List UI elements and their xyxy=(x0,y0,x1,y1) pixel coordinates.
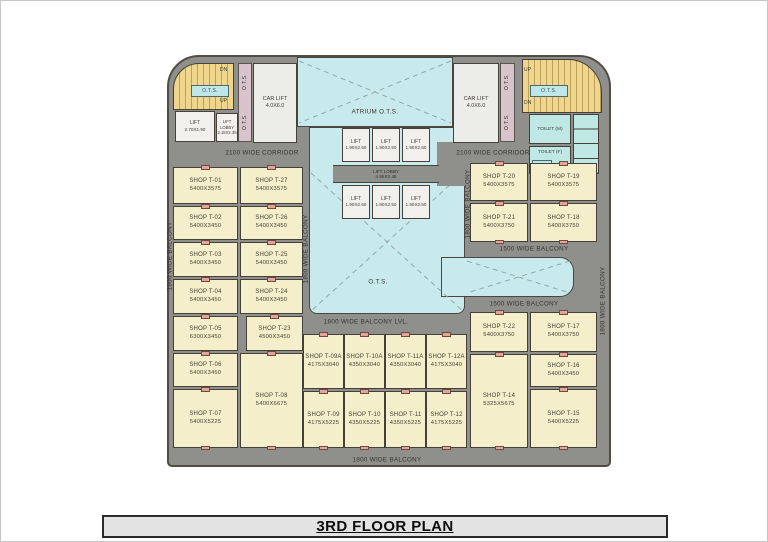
shop-t05: SHOP T-05 6300X3450 xyxy=(173,316,238,351)
balcony-left-label: 1800 WIDE BALCONY xyxy=(167,222,174,291)
shop-size: 5325X5675 xyxy=(483,401,514,409)
balcony-right-label: 1800 WIDE BALCONY xyxy=(600,267,607,336)
shop-t01: SHOP T-01 5400X3575 xyxy=(173,167,238,204)
shop-size: 5400X3450 xyxy=(190,223,221,231)
shop-t12a: SHOP T-12A 4175X3040 xyxy=(426,334,467,389)
shop-t03: SHOP T-03 5400X3450 xyxy=(173,242,238,277)
car-lift-left: CAR LIFT 4.0X6.0 xyxy=(253,63,297,143)
shop-t12: SHOP T-12 4175X5225 xyxy=(426,391,467,448)
shop-size: 4175X5225 xyxy=(431,420,462,428)
shop-size: 5400X3450 xyxy=(256,260,287,268)
shop-t21: SHOP T-21 5400X3750 xyxy=(470,203,528,242)
shop-label: SHOP T-05 xyxy=(189,326,221,334)
shop-t09: SHOP T-09 4175X5225 xyxy=(303,391,344,448)
toilet-men-label: TOILET (M) xyxy=(537,127,562,132)
shop-t06: SHOP T-06 5400X3450 xyxy=(173,353,238,387)
shop-label: SHOP T-12A xyxy=(428,354,464,362)
shop-t27: SHOP T-27 5400X3575 xyxy=(240,167,303,204)
atrium-ots-area xyxy=(297,57,453,127)
balcony-inner-right-label: 1800 WIDE BALCONY xyxy=(465,170,472,239)
shop-size: 5400X3750 xyxy=(483,332,514,340)
shop-t11: SHOP T-11 4350X5225 xyxy=(385,391,426,448)
lift-size: 1.90X2.50 xyxy=(406,145,427,151)
shop-label: SHOP T-09A xyxy=(305,354,341,362)
shop-label: SHOP T-11A xyxy=(387,354,423,362)
car-lift-size: 4.0X6.0 xyxy=(266,103,285,110)
shop-t02: SHOP T-02 5400X3450 xyxy=(173,206,238,240)
ots-box-stair-right: O.T.S. xyxy=(530,85,568,97)
shop-label: SHOP T-17 xyxy=(547,324,579,332)
lift-lobby-left: LIFT LOBBY 2.15X2.35 xyxy=(216,113,238,142)
shop-label: SHOP T-20 xyxy=(483,174,515,182)
shop-label: SHOP T-08 xyxy=(255,393,287,401)
shop-label: SHOP T-26 xyxy=(255,215,287,223)
shop-label: SHOP T-15 xyxy=(547,411,579,419)
shop-size: 4350X5225 xyxy=(390,420,421,428)
shop-label: SHOP T-14 xyxy=(483,393,515,401)
shop-label: SHOP T-16 xyxy=(547,363,579,371)
balcony-mid-label: 1800 WIDE BALCONY xyxy=(303,215,310,284)
shop-size: 5400X3450 xyxy=(256,223,287,231)
shop-label: SHOP T-23 xyxy=(258,326,290,334)
shop-label: SHOP T-03 xyxy=(189,252,221,260)
shop-t23: SHOP T-23 4500X3450 xyxy=(246,316,303,351)
shop-t22: SHOP T-22 5400X3750 xyxy=(470,312,528,352)
shop-size: 5400X3575 xyxy=(483,182,514,190)
page-title: 3RD FLOOR PLAN xyxy=(316,518,453,535)
shop-label: SHOP T-10A xyxy=(346,354,382,362)
ots-label: O.T.S. xyxy=(541,88,557,94)
shop-size: 4350X5225 xyxy=(349,420,380,428)
shop-size: 5400X3575 xyxy=(548,182,579,190)
shop-t11a: SHOP T-11A 4350X3040 xyxy=(385,334,426,389)
shop-t10: SHOP T-10 4350X5225 xyxy=(344,391,385,448)
ots-strip-label: O.T.S. xyxy=(504,74,510,90)
shop-size: 5400X3450 xyxy=(190,260,221,268)
shop-size: 6300X3450 xyxy=(190,334,221,342)
shop-t08: SHOP T-08 5400X6675 xyxy=(240,353,303,448)
shop-label: SHOP T-27 xyxy=(255,178,287,186)
car-lift-label: CAR LIFT xyxy=(464,96,489,103)
shop-size: 4500X3450 xyxy=(259,334,290,342)
shop-label: SHOP T-21 xyxy=(483,215,515,223)
ots-label: O.T.S. xyxy=(202,88,218,94)
shop-label: SHOP T-01 xyxy=(189,178,221,186)
shop-t14: SHOP T-14 5325X5675 xyxy=(470,354,528,448)
shop-label: SHOP T-18 xyxy=(547,215,579,223)
courtyard-ots-label: O.T.S. xyxy=(368,279,387,286)
lift-lobby-size: 2.15X2.35 xyxy=(217,130,236,135)
shop-t26: SHOP T-26 5400X3450 xyxy=(240,206,303,240)
shop-t20: SHOP T-20 5400X3575 xyxy=(470,163,528,201)
lift-lobby-size: 4.65X2.45 xyxy=(376,174,397,180)
atrium-label: ATRIUM O.T.S. xyxy=(352,109,399,116)
lift-room: LIFT 1.90X2.50 xyxy=(402,128,430,162)
shop-size: 5400X3750 xyxy=(483,223,514,231)
shop-t24: SHOP T-24 5400X3450 xyxy=(240,279,303,314)
lift-lobby-center: LIFT LOBBY 4.65X2.45 xyxy=(333,165,439,183)
shop-size: 5400X3450 xyxy=(548,371,579,379)
shop-size: 5400X5225 xyxy=(548,419,579,427)
ots-strip-label: O.T.S. xyxy=(504,114,510,130)
corridor-label-right: 2100 WIDE CORRIDOR xyxy=(456,150,529,157)
shop-label: SHOP T-19 xyxy=(547,174,579,182)
lift-size: 1.90X2.50 xyxy=(346,202,367,208)
lift-room: LIFT 1.90X2.50 xyxy=(402,185,430,219)
shop-t07: SHOP T-07 5400X5225 xyxy=(173,389,238,448)
shop-label: SHOP T-24 xyxy=(255,289,287,297)
lift-size: 1.90X2.50 xyxy=(376,202,397,208)
shop-label: SHOP T-10 xyxy=(348,412,380,420)
shop-size: 5400X3450 xyxy=(190,370,221,378)
ots-strip-label: O.T.S. xyxy=(242,114,248,130)
balcony-1500-label-lower: 1500 WIDE BALCONY xyxy=(490,301,559,308)
shop-t17: SHOP T-17 5400X3750 xyxy=(530,312,597,352)
plan-title-bar: 3RD FLOOR PLAN xyxy=(102,515,668,538)
shop-label: SHOP T-11 xyxy=(390,412,422,420)
shop-size: 5400X3750 xyxy=(548,332,579,340)
lift-room-left: LIFT 2.70X1.90 xyxy=(175,111,215,142)
shop-size: 4175X5225 xyxy=(308,420,339,428)
shop-size: 5400X3450 xyxy=(256,297,287,305)
balcony-lvl-label: 1800 WIDE BALCONY LVL. xyxy=(324,319,409,326)
shop-size: 5400X3450 xyxy=(190,297,221,305)
lift-room: LIFT 1.90X2.50 xyxy=(372,128,400,162)
shop-t04: SHOP T-04 5400X3450 xyxy=(173,279,238,314)
ots-box-stair-left: O.T.S. xyxy=(191,85,229,97)
shop-size: 5400X3575 xyxy=(256,186,287,194)
shop-t15: SHOP T-15 5400X5225 xyxy=(530,389,597,448)
shop-label: SHOP T-25 xyxy=(255,252,287,260)
car-lift-size: 4.0X6.0 xyxy=(467,103,486,110)
toilet-women-label: TOILET (F) xyxy=(538,150,562,155)
car-lift-right: CAR LIFT 4.0X6.0 xyxy=(453,63,499,143)
floor-plan-canvas: LIFT LOBBY 4.65X2.45 LIFT 1.90X2.50 LIFT… xyxy=(0,0,768,542)
stair-dn-label: DN xyxy=(524,100,532,106)
shop-size: 4350X3040 xyxy=(390,362,421,370)
shop-label: SHOP T-09 xyxy=(307,412,339,420)
stair-dn-label: DN xyxy=(220,67,228,73)
lift-size: 1.90X2.50 xyxy=(406,202,427,208)
corridor-label-left: 2100 WIDE CORRIDOR xyxy=(225,150,298,157)
shop-t25: SHOP T-25 5400X3450 xyxy=(240,242,303,277)
stair-up-label: UP xyxy=(524,67,531,73)
shop-size: 5400X5225 xyxy=(190,419,221,427)
toilet-men: TOILET (M) xyxy=(529,114,571,144)
shop-label: SHOP T-22 xyxy=(483,324,515,332)
lift-room: LIFT 1.90X2.50 xyxy=(372,185,400,219)
lift-size: 1.90X2.50 xyxy=(376,145,397,151)
lift-room: LIFT 1.90X2.50 xyxy=(342,128,370,162)
shop-label: SHOP T-07 xyxy=(189,411,221,419)
shop-label: SHOP T-04 xyxy=(189,289,221,297)
shop-t18: SHOP T-18 5400X3750 xyxy=(530,203,597,242)
stair-up-label: UP xyxy=(220,98,227,104)
shop-size: 5400X6675 xyxy=(256,401,287,409)
shop-t19: SHOP T-19 5400X3575 xyxy=(530,163,597,201)
shop-t09a: SHOP T-09A 4175X3040 xyxy=(303,334,344,389)
lift-lobby-label: LIFT LOBBY xyxy=(217,119,237,130)
courtyard-arm-area xyxy=(441,257,574,297)
lift-size: 1.90X2.50 xyxy=(346,145,367,151)
shop-size: 5400X3750 xyxy=(548,223,579,231)
shop-label: SHOP T-06 xyxy=(189,362,221,370)
shop-size: 4175X3040 xyxy=(308,362,339,370)
shop-t16: SHOP T-16 5400X3450 xyxy=(530,354,597,387)
shop-label: SHOP T-12 xyxy=(430,412,462,420)
balcony-1500-label-upper: 1500 WIDE BALCONY xyxy=(500,246,569,253)
shop-size: 4175X3040 xyxy=(431,362,462,370)
shop-size: 5400X3575 xyxy=(190,186,221,194)
lift-size: 2.70X1.90 xyxy=(185,127,206,133)
shop-label: SHOP T-02 xyxy=(189,215,221,223)
shop-size: 4350X3040 xyxy=(349,362,380,370)
balcony-bottom-label: 1800 WIDE BALCONY xyxy=(353,457,422,464)
lift-room: LIFT 1.90X2.50 xyxy=(342,185,370,219)
ots-strip-label: O.T.S. xyxy=(242,74,248,90)
shop-t10a: SHOP T-10A 4350X3040 xyxy=(344,334,385,389)
car-lift-label: CAR LIFT xyxy=(263,96,288,103)
